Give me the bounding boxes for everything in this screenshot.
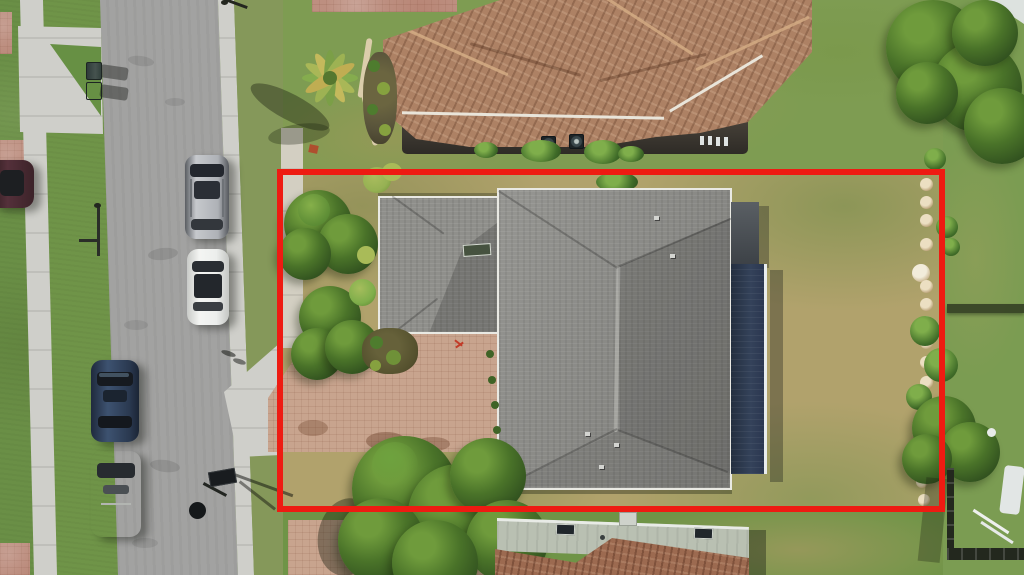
lamp-post <box>97 206 100 256</box>
parked-suv-navy <box>91 360 139 442</box>
pole-base <box>221 0 228 5</box>
palm-tree-crown <box>323 71 337 85</box>
property-boundary-outline <box>277 169 945 512</box>
road-smudge <box>165 98 185 106</box>
chain-link-fence-vertical <box>947 468 954 556</box>
foundation-hedge <box>618 146 644 162</box>
car-glass <box>0 170 24 196</box>
bottom-house-skylight <box>556 524 575 536</box>
tile-valley <box>599 53 706 82</box>
top-house-paver-strip <box>312 0 457 12</box>
window-frame <box>708 136 712 145</box>
suv-sunroof <box>194 181 220 199</box>
foundation-hedge <box>474 142 498 158</box>
van-windshield <box>97 463 135 478</box>
chain-link-fence-horizontal <box>947 548 1024 560</box>
tile-ridge <box>566 0 693 56</box>
aerial-photo-scene <box>0 0 1024 575</box>
lamp-post-arm-shadow <box>79 239 98 242</box>
trash-bin <box>86 62 102 80</box>
bottom-house-skylight <box>694 528 713 540</box>
window-frame <box>724 137 728 146</box>
parked-sedan-white <box>187 249 229 325</box>
foundation-hedge <box>521 140 561 162</box>
suv-sunroof <box>103 390 127 402</box>
suv-windshield <box>190 164 224 177</box>
white-yard-item <box>987 428 996 437</box>
hoop-backboard <box>208 468 237 487</box>
bottom-house-chimney <box>619 512 637 526</box>
suv-roof-rail <box>222 179 224 217</box>
lamp-head <box>94 203 101 208</box>
sedan-windshield <box>192 261 224 272</box>
hedge-fence-line <box>947 304 1024 313</box>
garden-plant <box>377 82 390 95</box>
bottom-house-shadow <box>749 530 766 575</box>
paver-patch <box>0 12 12 54</box>
suv-rear-glass <box>98 416 132 428</box>
paver-patch <box>0 543 30 575</box>
right-bush <box>924 148 946 170</box>
garden-plant <box>367 104 378 115</box>
hoop-base <box>189 502 206 519</box>
van-sunroof <box>103 485 129 494</box>
parked-suv-silver <box>185 155 229 239</box>
foundation-hedge <box>584 140 622 164</box>
garden-plant <box>368 60 380 72</box>
right-large-tree <box>896 62 958 124</box>
sedan-glass-roof <box>194 274 222 298</box>
brick-marker <box>308 144 318 154</box>
roof-vent <box>600 535 605 540</box>
windshield-reflection <box>99 373 129 377</box>
sedan-rear-window <box>193 302 223 311</box>
van-roof-line <box>101 503 131 505</box>
garden-plant <box>379 124 391 136</box>
window-frame <box>700 136 704 145</box>
right-large-tree <box>952 0 1018 66</box>
road-smudge <box>132 538 158 548</box>
tile-ridge <box>402 27 508 77</box>
window-frame <box>716 137 720 146</box>
trash-bin <box>86 82 102 100</box>
parked-car-dark <box>0 160 34 208</box>
suv-roof-rail <box>190 179 192 217</box>
tile-valley <box>470 42 581 76</box>
parked-van-white <box>91 451 141 537</box>
suv-rear-glass <box>191 219 223 230</box>
tile-ridge <box>695 16 810 72</box>
ac-unit <box>569 134 584 149</box>
road-smudge <box>124 320 148 330</box>
